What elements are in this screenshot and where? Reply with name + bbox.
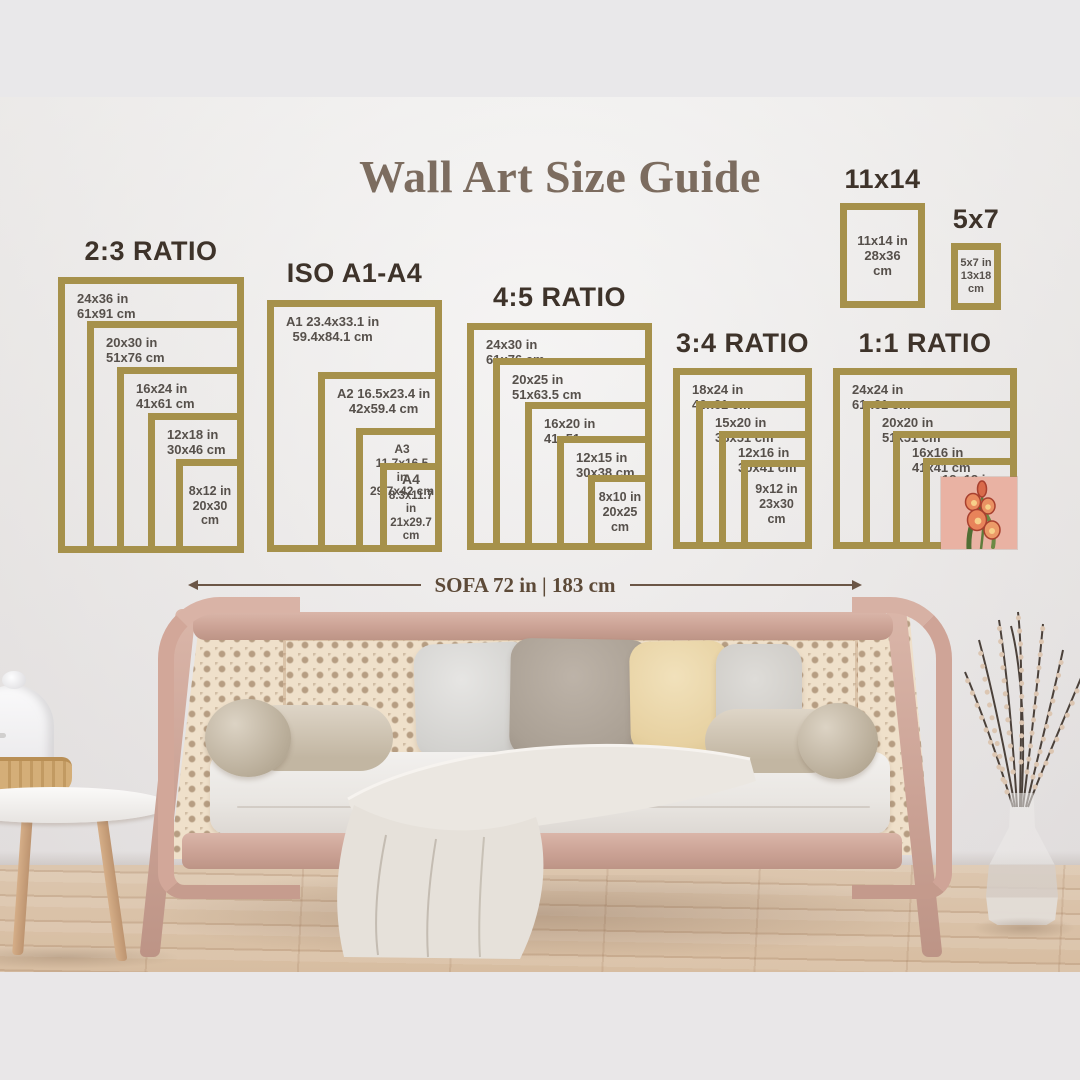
size-guide-overlay: Wall Art Size Guide 2:3 RATIO 24x36 in61… (0, 0, 1080, 1080)
group-header-1-1: 1:1 RATIO (833, 328, 1017, 359)
gladiolus-art-print (941, 477, 1017, 549)
size-frame-8x12: 8x12 in20x30cm (176, 459, 244, 553)
size-frame-a4: A48.3x11.7 in21x29.7cm (380, 463, 442, 552)
size-frame-9x12: 9x12 in23x30cm (741, 460, 812, 549)
bottom-margin-band (0, 972, 1080, 1080)
group-header-2-3: 2:3 RATIO (58, 236, 244, 267)
group-header-11x14: 11x14 (836, 164, 929, 195)
group-header-5x7: 5x7 (946, 204, 1006, 235)
group-header-iso: ISO A1-A4 (267, 258, 442, 289)
measure-arrow-left (190, 584, 421, 586)
sofa-width-measure: SOFA 72 in | 183 cm (190, 572, 860, 598)
page-title: Wall Art Size Guide (330, 150, 790, 203)
measure-label: SOFA 72 in | 183 cm (435, 573, 616, 598)
measure-arrow-right (630, 584, 861, 586)
wall-art-size-guide-poster: Wall Art Size Guide 2:3 RATIO 24x36 in61… (0, 0, 1080, 1080)
size-frame-5x7: 5x7 in13x18cm (951, 243, 1001, 310)
group-header-4-5: 4:5 RATIO (467, 282, 652, 313)
size-frame-11x14: 11x14 in28x36cm (840, 203, 925, 308)
group-header-3-4: 3:4 RATIO (673, 328, 812, 359)
size-frame-8x10: 8x10 in20x25cm (588, 475, 652, 550)
